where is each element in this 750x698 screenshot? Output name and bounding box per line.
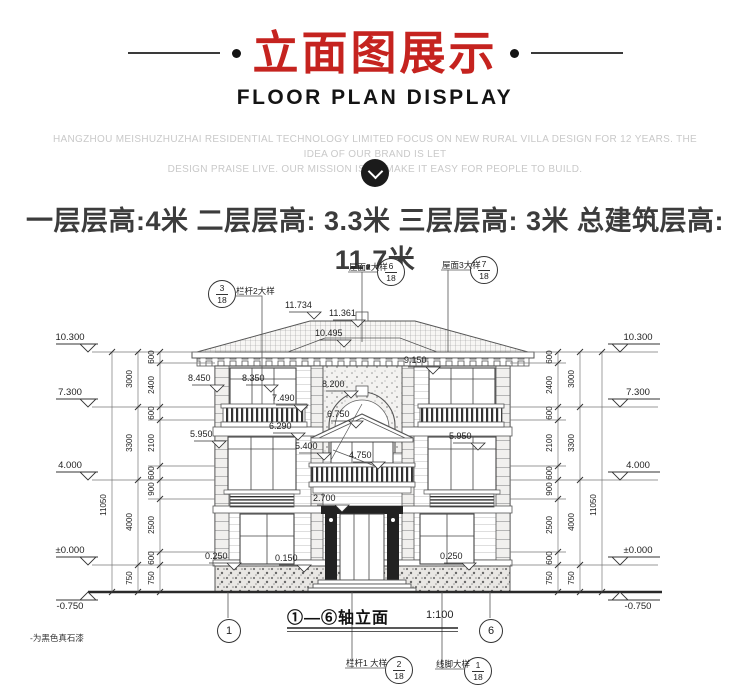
level-label: -0.750 xyxy=(44,601,96,612)
detail-number: 2 xyxy=(393,660,406,671)
detail-label-roof2: 屋面2大样 xyxy=(349,261,388,273)
material-note: -为黑色真石漆 xyxy=(30,632,84,644)
dim-inner: 750 xyxy=(545,556,555,600)
facade-level-label: 5.400 xyxy=(295,441,329,451)
facade-level-label: 0.250 xyxy=(205,551,239,561)
facade-level-label: 6.750 xyxy=(327,409,361,419)
roof-dim-label: 11.734 xyxy=(285,300,319,310)
level-label: ±0.000 xyxy=(612,545,664,556)
detail-label-molding: 线脚大样 xyxy=(436,658,470,670)
elevation-drawing: 10.300 7.300 4.000 ±0.000 -0.750 10.300 … xyxy=(0,0,750,698)
caption-underline xyxy=(287,628,458,632)
dim-mid: 750 xyxy=(125,556,135,600)
facade-level-label: 9.150 xyxy=(404,355,438,365)
elevation-linework xyxy=(0,0,750,698)
detail-sheet: 18 xyxy=(217,295,226,305)
dim-mid: 3300 xyxy=(567,421,577,465)
drawing-caption: ①—⑥轴立面 xyxy=(287,604,389,628)
dim-mid: 3300 xyxy=(125,421,135,465)
facade-level-label: 0.150 xyxy=(275,553,309,563)
axis-bubble-1: 1 xyxy=(217,619,241,643)
facade-level-label: 5.950 xyxy=(190,429,224,439)
dim-total: 11050 xyxy=(589,483,599,527)
facade-level-label: 2.700 xyxy=(313,493,347,503)
facade-level-label: 6.290 xyxy=(269,421,303,431)
axis-number: 1 xyxy=(226,625,232,637)
facade-level-label: 8.450 xyxy=(188,373,222,383)
facade-level-label: 8.200 xyxy=(322,379,356,389)
dim-mid: 3000 xyxy=(125,357,135,401)
facade-level-label: 7.490 xyxy=(272,393,306,403)
facade-level-label: 5.950 xyxy=(449,431,483,441)
detail-marker-railing2: 3 18 xyxy=(208,280,236,308)
dim-mid: 3000 xyxy=(567,357,577,401)
facade-level-label: 8.350 xyxy=(242,373,276,383)
detail-number: 1 xyxy=(472,661,485,672)
facade-level-label: 4.750 xyxy=(349,450,383,460)
level-label: ±0.000 xyxy=(44,545,96,556)
dim-mid: 4000 xyxy=(125,500,135,544)
detail-sheet: 18 xyxy=(386,273,395,283)
dim-mid: 750 xyxy=(567,556,577,600)
level-label: 7.300 xyxy=(612,387,664,398)
dim-total: 11050 xyxy=(99,483,109,527)
detail-label-railing2: 栏杆2大样 xyxy=(236,285,275,297)
dim-inner: 750 xyxy=(147,556,157,600)
detail-sheet: 18 xyxy=(394,671,403,681)
detail-label-roof3: 屋面3大样 xyxy=(442,259,481,271)
drawing-scale: 1:100 xyxy=(426,609,454,621)
level-label: 7.300 xyxy=(44,387,96,398)
detail-marker-railing1: 2 18 xyxy=(385,656,413,684)
level-label: -0.750 xyxy=(612,601,664,612)
roof-dim-label: 11.361 xyxy=(329,308,363,318)
level-label: 4.000 xyxy=(612,460,664,471)
axis-number: 6 xyxy=(488,625,494,637)
dim-mid: 4000 xyxy=(567,500,577,544)
axis-bubble-6: 6 xyxy=(479,619,503,643)
floor-plan-display-page: 立面图展示 FLOOR PLAN DISPLAY HANGZHOU MEISHU… xyxy=(0,0,750,698)
detail-number: 3 xyxy=(216,284,229,295)
detail-sheet: 18 xyxy=(473,672,482,682)
detail-label-railing1: 栏杆1 大样 xyxy=(346,657,387,669)
roof-dim-label: 10.495 xyxy=(315,328,349,338)
level-label: 4.000 xyxy=(44,460,96,471)
facade-level-label: 0.250 xyxy=(440,551,474,561)
level-label: 10.300 xyxy=(612,332,664,343)
detail-sheet: 18 xyxy=(479,271,488,281)
level-label: 10.300 xyxy=(44,332,96,343)
